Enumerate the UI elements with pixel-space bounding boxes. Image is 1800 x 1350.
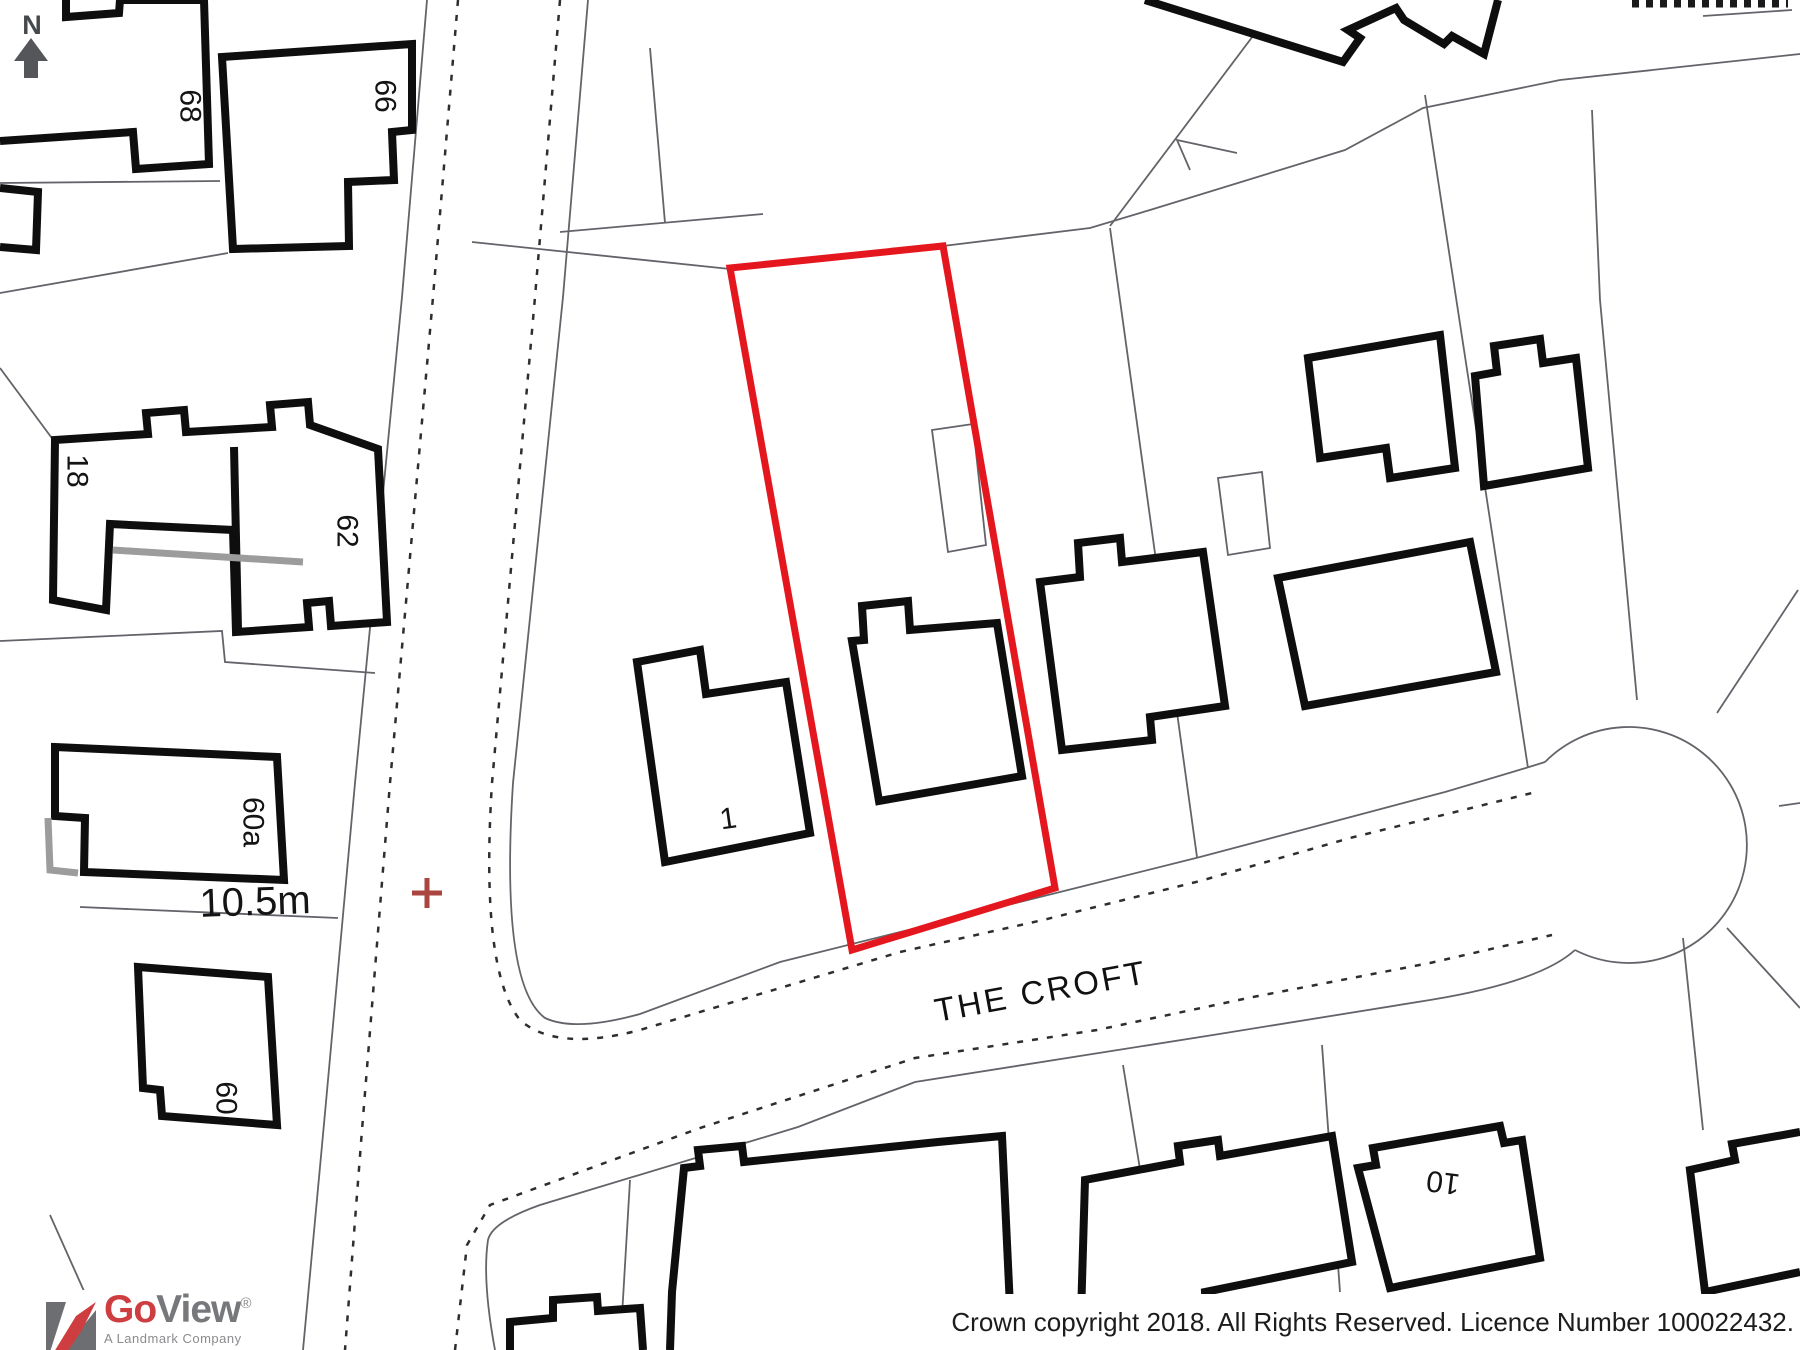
site-plan-map: 68 66 18 62 60a 60 1 10 10.5m THE CROFT … — [0, 0, 1800, 1350]
outbuilding-east — [1218, 472, 1270, 555]
logo-go: Go — [104, 1288, 156, 1331]
logo-view: View — [156, 1288, 240, 1331]
building-ne-house — [1308, 335, 1455, 478]
house-number-60: 60 — [210, 1081, 243, 1114]
building-66 — [222, 44, 412, 249]
building-east-house — [1040, 538, 1225, 750]
street-name-label: THE CROFT — [932, 953, 1151, 1029]
building-10 — [1358, 1126, 1540, 1288]
house-number-62: 62 — [331, 514, 364, 547]
logo-tagline: A Landmark Company — [104, 1332, 250, 1345]
copyright-strip: Crown copyright 2018. All Rights Reserve… — [940, 1294, 1800, 1350]
copyright-text: Crown copyright 2018. All Rights Reserve… — [951, 1307, 1794, 1338]
building-rect-house — [1278, 542, 1496, 706]
house-number-18: 18 — [61, 454, 94, 487]
north-label: N — [22, 10, 42, 40]
goview-wordmark: GoView® — [104, 1290, 250, 1329]
party-wall-18-62 — [234, 447, 238, 630]
measurement-label: 10.5m — [199, 878, 312, 926]
building-subject-house — [852, 601, 1022, 801]
building-top-right — [1145, 0, 1498, 62]
goview-logo: GoView® A Landmark Company — [28, 1290, 296, 1350]
building-60 — [138, 967, 277, 1125]
house-number-66: 66 — [369, 79, 402, 112]
buildings — [0, 0, 1800, 1350]
registered-mark: ® — [240, 1295, 250, 1312]
house-number-68: 68 — [174, 89, 207, 122]
goview-logo-icon — [46, 1300, 98, 1350]
building-left-edge — [0, 188, 38, 250]
house-number-10: 10 — [1425, 1164, 1462, 1201]
building-south-right — [1690, 1132, 1800, 1292]
house-number-60a: 60a — [237, 797, 270, 847]
red-plot-boundary — [730, 246, 1055, 950]
cul-de-sac-circle — [1545, 727, 1747, 963]
building-ne-house-2 — [1475, 339, 1588, 486]
site-plan-drawing: 68 66 18 62 60a 60 1 10 10.5m THE CROFT … — [0, 0, 1800, 1350]
survey-cross-icon — [412, 878, 442, 908]
